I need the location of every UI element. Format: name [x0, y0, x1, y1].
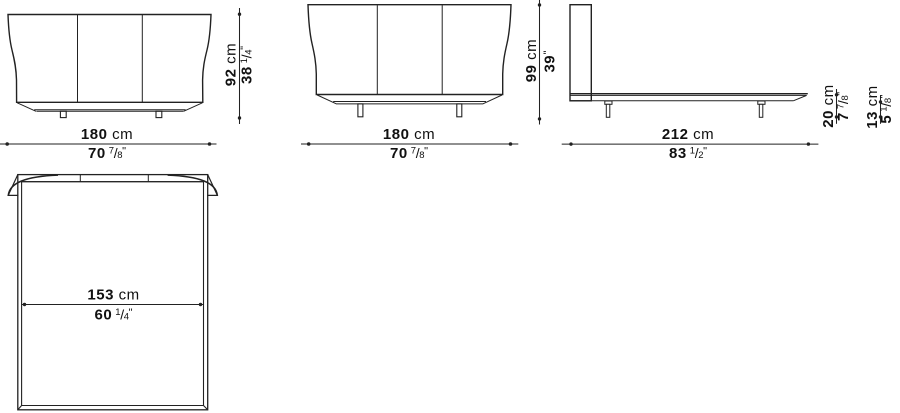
svg-text:180 cm: 180 cm [81, 126, 133, 143]
svg-text:153 cm: 153 cm [87, 287, 139, 304]
svg-text:92 cm: 92 cm [223, 43, 240, 86]
svg-text:180 cm: 180 cm [383, 126, 435, 143]
svg-text:99 cm: 99 cm [523, 39, 540, 82]
svg-text:212 cm: 212 cm [662, 126, 714, 143]
